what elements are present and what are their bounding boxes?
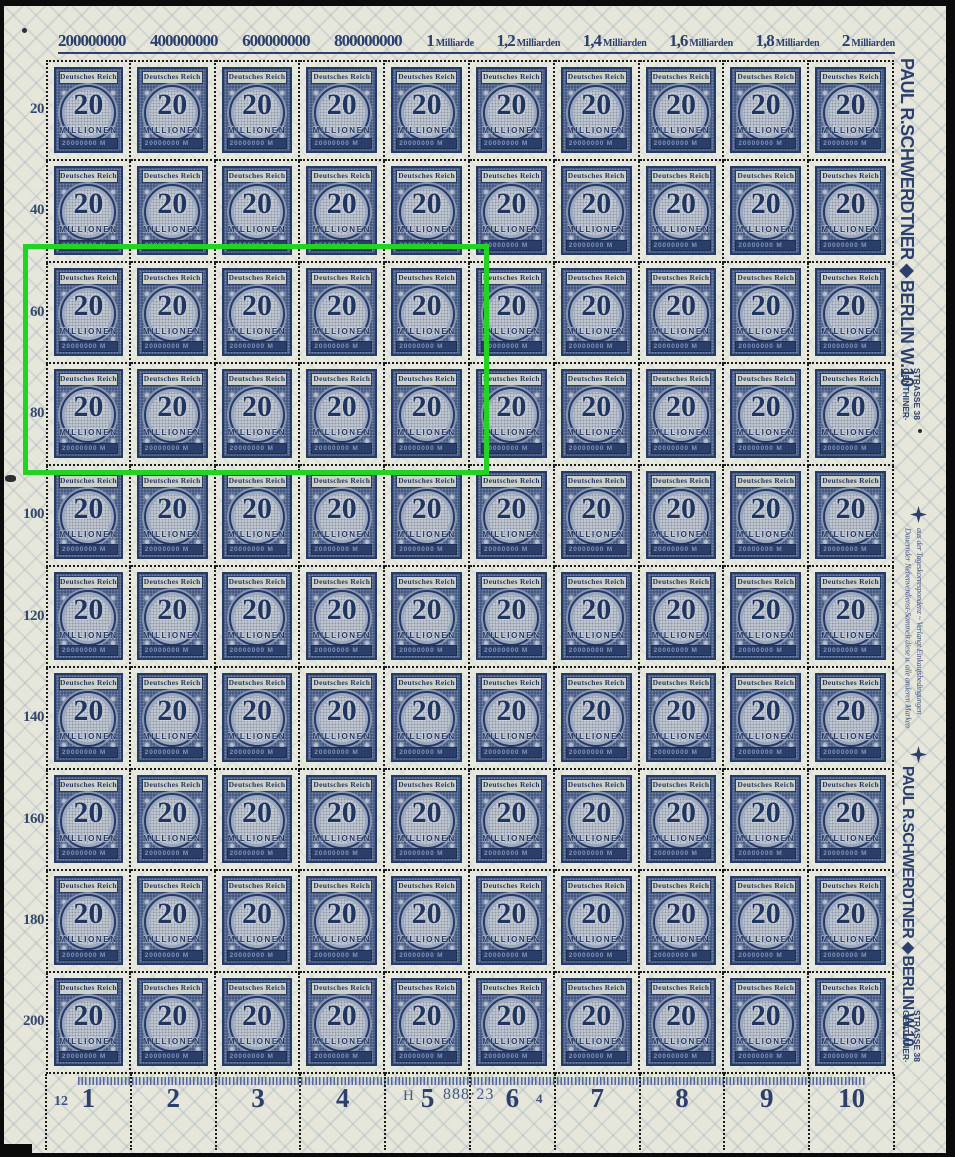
stamp-face-value: 20000000 M — [735, 848, 796, 859]
stamp[interactable]: Deutsches Reich20MILLIONEN20000000 M — [470, 60, 555, 161]
stamp[interactable]: Deutsches Reich20MILLIONEN20000000 M — [809, 466, 894, 567]
stamp-design: Deutsches Reich20MILLIONEN20000000 M — [391, 876, 462, 964]
stamp-design: Deutsches Reich20MILLIONEN20000000 M — [137, 978, 208, 1066]
stamp[interactable]: Deutsches Reich20MILLIONEN20000000 M — [385, 161, 470, 262]
stamp-face-value: 20000000 M — [481, 950, 542, 961]
scale-number: 1,4 — [583, 31, 601, 51]
scale-label: 1,4Milliarden — [583, 31, 647, 51]
stamp[interactable]: Deutsches Reich20MILLIONEN20000000 M — [385, 871, 470, 972]
stamp-country-label: Deutsches Reich — [227, 71, 288, 84]
column-number: 9 — [742, 1083, 792, 1113]
perforation-line — [45, 1074, 47, 1150]
stamp-design: Deutsches Reich20MILLIONEN20000000 M — [391, 673, 462, 761]
stamp-face-value: 20000000 M — [481, 848, 542, 859]
stamp[interactable]: Deutsches Reich20MILLIONEN20000000 M — [724, 567, 809, 668]
stamp-country-label: Deutsches Reich — [142, 880, 203, 893]
stamp[interactable]: Deutsches Reich20MILLIONEN20000000 M — [131, 668, 216, 769]
row-count-label: 160 — [8, 811, 44, 828]
stamp-denomination: MILLIONEN — [563, 225, 630, 235]
stamp[interactable]: Deutsches Reich20MILLIONEN20000000 M — [555, 364, 640, 465]
stamp-value: 20 — [393, 899, 460, 929]
star-icon — [910, 746, 927, 763]
scan-speck — [22, 28, 27, 33]
stamp-design: Deutsches Reich20MILLIONEN20000000 M — [730, 978, 801, 1066]
stamp-sheet-scan: { "top_scale": { "labels": [ {"num":"200… — [0, 0, 955, 1157]
stamp[interactable]: Deutsches Reich20MILLIONEN20000000 M — [46, 770, 131, 871]
stamp-country-label: Deutsches Reich — [227, 982, 288, 995]
stamp-face-value: 20000000 M — [142, 1051, 203, 1062]
stamp-denomination: MILLIONEN — [478, 935, 545, 945]
stamp-value: 20 — [648, 798, 715, 828]
stamp-denomination: MILLIONEN — [817, 631, 884, 641]
stamp[interactable]: Deutsches Reich20MILLIONEN20000000 M — [131, 161, 216, 262]
stamp-face-value: 20000000 M — [311, 443, 372, 454]
stamp-country-label: Deutsches Reich — [820, 576, 881, 589]
stamp-denomination: MILLIONEN — [563, 631, 630, 641]
stamp-country-label: Deutsches Reich — [396, 170, 457, 183]
stamp[interactable]: Deutsches Reich20MILLIONEN20000000 M — [809, 973, 894, 1074]
stamp[interactable]: Deutsches Reich20MILLIONEN20000000 M — [385, 263, 470, 364]
stamp-denomination: MILLIONEN — [648, 935, 715, 945]
stamp-value: 20 — [563, 392, 630, 422]
stamp[interactable]: Deutsches Reich20MILLIONEN20000000 M — [131, 770, 216, 871]
stamp[interactable]: Deutsches Reich20MILLIONEN20000000 M — [46, 871, 131, 972]
stamp-face-value: 20000000 M — [481, 341, 542, 352]
stamp-value: 20 — [732, 90, 799, 120]
stamp[interactable]: Deutsches Reich20MILLIONEN20000000 M — [216, 263, 301, 364]
stamp[interactable]: Deutsches Reich20MILLIONEN20000000 M — [640, 364, 725, 465]
stamp-value: 20 — [393, 1001, 460, 1031]
stamp-value: 20 — [732, 1001, 799, 1031]
stamp-value: 20 — [224, 696, 291, 726]
stamp-country-label: Deutsches Reich — [481, 170, 542, 183]
stamp[interactable]: Deutsches Reich20MILLIONEN20000000 M — [470, 973, 555, 1074]
stamp[interactable]: Deutsches Reich20MILLIONEN20000000 M — [385, 668, 470, 769]
stamp[interactable]: Deutsches Reich20MILLIONEN20000000 M — [385, 364, 470, 465]
stamp[interactable]: Deutsches Reich20MILLIONEN20000000 M — [555, 60, 640, 161]
stamp-value: 20 — [817, 595, 884, 625]
stamp-country-label: Deutsches Reich — [820, 475, 881, 488]
stamp[interactable]: Deutsches Reich20MILLIONEN20000000 M — [809, 567, 894, 668]
stamp-design: Deutsches Reich20MILLIONEN20000000 M — [646, 166, 717, 254]
scan-speck — [918, 429, 922, 433]
stamp-value: 20 — [308, 595, 375, 625]
stamp-value: 20 — [393, 90, 460, 120]
stamp[interactable]: Deutsches Reich20MILLIONEN20000000 M — [216, 871, 301, 972]
scale-label: 400000000 — [150, 31, 220, 51]
stamp-denomination: MILLIONEN — [478, 225, 545, 235]
stamp-value: 20 — [393, 696, 460, 726]
stamp[interactable]: Deutsches Reich20MILLIONEN20000000 M — [640, 871, 725, 972]
stamp[interactable]: Deutsches Reich20MILLIONEN20000000 M — [385, 466, 470, 567]
scan-edge — [0, 0, 955, 6]
stamp-face-value: 20000000 M — [142, 645, 203, 656]
stamp-value: 20 — [393, 494, 460, 524]
stamp-value: 20 — [224, 1001, 291, 1031]
scale-number: 200000000 — [58, 31, 126, 51]
stamp-design: Deutsches Reich20MILLIONEN20000000 M — [306, 876, 377, 964]
stamp-design: Deutsches Reich20MILLIONEN20000000 M — [222, 268, 293, 356]
stamp[interactable]: Deutsches Reich20MILLIONEN20000000 M — [300, 263, 385, 364]
stamp[interactable]: Deutsches Reich20MILLIONEN20000000 M — [555, 567, 640, 668]
stamp[interactable]: Deutsches Reich20MILLIONEN20000000 M — [724, 668, 809, 769]
stamp-country-label: Deutsches Reich — [481, 475, 542, 488]
stamp-value: 20 — [139, 494, 206, 524]
stamp[interactable]: Deutsches Reich20MILLIONEN20000000 M — [724, 466, 809, 567]
stamp-design: Deutsches Reich20MILLIONEN20000000 M — [306, 775, 377, 863]
stamp-face-value: 20000000 M — [311, 950, 372, 961]
stamp-face-value: 20000000 M — [651, 138, 712, 149]
scale-number: 1 — [426, 31, 434, 51]
stamp[interactable]: Deutsches Reich20MILLIONEN20000000 M — [216, 466, 301, 567]
stamp-country-label: Deutsches Reich — [227, 576, 288, 589]
stamp-design: Deutsches Reich20MILLIONEN20000000 M — [54, 673, 123, 761]
stamp-denomination: MILLIONEN — [478, 834, 545, 844]
stamp-denomination: MILLIONEN — [139, 327, 206, 337]
stamp-value: 20 — [817, 696, 884, 726]
stamp[interactable]: Deutsches Reich20MILLIONEN20000000 M — [131, 60, 216, 161]
stamp-face-value: 20000000 M — [820, 645, 881, 656]
stamp[interactable]: Deutsches Reich20MILLIONEN20000000 M — [131, 364, 216, 465]
stamp[interactable]: Deutsches Reich20MILLIONEN20000000 M — [131, 263, 216, 364]
stamp-face-value: 20000000 M — [735, 443, 796, 454]
stamp[interactable]: Deutsches Reich20MILLIONEN20000000 M — [131, 567, 216, 668]
stamp-face-value: 20000000 M — [566, 950, 627, 961]
stamp-design: Deutsches Reich20MILLIONEN20000000 M — [730, 471, 801, 559]
stamp[interactable]: Deutsches Reich20MILLIONEN20000000 M — [216, 161, 301, 262]
stamp-denomination: MILLIONEN — [817, 225, 884, 235]
stamp-country-label: Deutsches Reich — [566, 71, 627, 84]
stamp[interactable]: Deutsches Reich20MILLIONEN20000000 M — [555, 466, 640, 567]
stamp[interactable]: Deutsches Reich20MILLIONEN20000000 M — [640, 263, 725, 364]
stamp-denomination: MILLIONEN — [563, 732, 630, 742]
stamp[interactable]: Deutsches Reich20MILLIONEN20000000 M — [470, 567, 555, 668]
stamp-design: Deutsches Reich20MILLIONEN20000000 M — [137, 369, 208, 457]
stamp[interactable]: Deutsches Reich20MILLIONEN20000000 M — [640, 466, 725, 567]
stamp-design: Deutsches Reich20MILLIONEN20000000 M — [815, 572, 886, 660]
scale-number: 1,8 — [756, 31, 774, 51]
stamp-value: 20 — [56, 1001, 121, 1031]
stamp-value: 20 — [648, 90, 715, 120]
stamp-design: Deutsches Reich20MILLIONEN20000000 M — [561, 369, 632, 457]
stamp-denomination: MILLIONEN — [732, 732, 799, 742]
scale-number: 400000000 — [150, 31, 218, 51]
stamp-face-value: 20000000 M — [396, 950, 457, 961]
stamp-country-label: Deutsches Reich — [59, 779, 118, 792]
stamp[interactable]: Deutsches Reich20MILLIONEN20000000 M — [216, 668, 301, 769]
stamp[interactable]: Deutsches Reich20MILLIONEN20000000 M — [385, 973, 470, 1074]
stamp[interactable]: Deutsches Reich20MILLIONEN20000000 M — [46, 263, 131, 364]
row-count-label: 200 — [8, 1013, 44, 1030]
stamp[interactable]: Deutsches Reich20MILLIONEN20000000 M — [470, 466, 555, 567]
stamp-country-label: Deutsches Reich — [735, 170, 796, 183]
stamp-face-value: 20000000 M — [481, 747, 542, 758]
stamp-country-label: Deutsches Reich — [396, 272, 457, 285]
stamp-country-label: Deutsches Reich — [59, 982, 118, 995]
stamp-country-label: Deutsches Reich — [59, 170, 118, 183]
stamp[interactable]: Deutsches Reich20MILLIONEN20000000 M — [640, 668, 725, 769]
scan-edge — [0, 1153, 955, 1157]
stamp[interactable]: Deutsches Reich20MILLIONEN20000000 M — [470, 263, 555, 364]
stamp-value: 20 — [393, 798, 460, 828]
stamp-country-label: Deutsches Reich — [227, 373, 288, 386]
stamp-denomination: MILLIONEN — [308, 732, 375, 742]
stamp-face-value: 20000000 M — [311, 848, 372, 859]
stamp-face-value: 20000000 M — [735, 645, 796, 656]
stamp-face-value: 20000000 M — [142, 544, 203, 555]
stamp-denomination: MILLIONEN — [56, 327, 121, 337]
stamp[interactable]: Deutsches Reich20MILLIONEN20000000 M — [46, 364, 131, 465]
scale-label: 600000000 — [242, 31, 312, 51]
stamp[interactable]: Deutsches Reich20MILLIONEN20000000 M — [809, 161, 894, 262]
stamp-face-value: 20000000 M — [651, 848, 712, 859]
stamp-value: 20 — [732, 798, 799, 828]
stamp[interactable]: Deutsches Reich20MILLIONEN20000000 M — [300, 567, 385, 668]
stamp-value: 20 — [732, 291, 799, 321]
stamp[interactable]: Deutsches Reich20MILLIONEN20000000 M — [216, 973, 301, 1074]
stamp[interactable]: Deutsches Reich20MILLIONEN20000000 M — [470, 364, 555, 465]
stamp-country-label: Deutsches Reich — [651, 272, 712, 285]
stamp[interactable]: Deutsches Reich20MILLIONEN20000000 M — [131, 973, 216, 1074]
stamp[interactable]: Deutsches Reich20MILLIONEN20000000 M — [555, 263, 640, 364]
stamp-country-label: Deutsches Reich — [481, 272, 542, 285]
scale-number: 1,6 — [669, 31, 687, 51]
stamp-value: 20 — [308, 189, 375, 219]
stamp-denomination: MILLIONEN — [732, 225, 799, 235]
stamp-value: 20 — [308, 392, 375, 422]
stamp[interactable]: Deutsches Reich20MILLIONEN20000000 M — [300, 466, 385, 567]
stamp-value: 20 — [393, 392, 460, 422]
stamp-country-label: Deutsches Reich — [566, 475, 627, 488]
stamp-country-label: Deutsches Reich — [820, 170, 881, 183]
stamp[interactable]: Deutsches Reich20MILLIONEN20000000 M — [46, 668, 131, 769]
stamp[interactable]: Deutsches Reich20MILLIONEN20000000 M — [300, 161, 385, 262]
stamp[interactable]: Deutsches Reich20MILLIONEN20000000 M — [470, 161, 555, 262]
stamp-face-value: 20000000 M — [311, 544, 372, 555]
stamp[interactable]: Deutsches Reich20MILLIONEN20000000 M — [809, 770, 894, 871]
column-number: 7 — [572, 1083, 622, 1113]
stamp-design: Deutsches Reich20MILLIONEN20000000 M — [476, 775, 547, 863]
stamp-country-label: Deutsches Reich — [311, 982, 372, 995]
stamp-face-value: 20000000 M — [651, 240, 712, 251]
stamp-country-label: Deutsches Reich — [566, 170, 627, 183]
stamp-face-value: 20000000 M — [311, 240, 372, 251]
stamp[interactable]: Deutsches Reich20MILLIONEN20000000 M — [385, 770, 470, 871]
stamp[interactable]: Deutsches Reich20MILLIONEN20000000 M — [640, 973, 725, 1074]
stamp-design: Deutsches Reich20MILLIONEN20000000 M — [815, 166, 886, 254]
stamp[interactable]: Deutsches Reich20MILLIONEN20000000 M — [724, 161, 809, 262]
stamp-face-value: 20000000 M — [142, 848, 203, 859]
stamp[interactable]: Deutsches Reich20MILLIONEN20000000 M — [300, 770, 385, 871]
stamp-design: Deutsches Reich20MILLIONEN20000000 M — [391, 572, 462, 660]
stamp-design: Deutsches Reich20MILLIONEN20000000 M — [222, 67, 293, 153]
stamp-face-value: 20000000 M — [820, 544, 881, 555]
stamp-grid: Deutsches Reich20MILLIONEN20000000 MDeut… — [46, 60, 894, 1074]
stamp-face-value: 20000000 M — [566, 341, 627, 352]
stamp-design: Deutsches Reich20MILLIONEN20000000 M — [476, 67, 547, 153]
stamp-design: Deutsches Reich20MILLIONEN20000000 M — [306, 268, 377, 356]
stamp-country-label: Deutsches Reich — [651, 475, 712, 488]
stamp[interactable]: Deutsches Reich20MILLIONEN20000000 M — [470, 871, 555, 972]
stamp-face-value: 20000000 M — [142, 341, 203, 352]
stamp[interactable]: Deutsches Reich20MILLIONEN20000000 M — [809, 60, 894, 161]
stamp[interactable]: Deutsches Reich20MILLIONEN20000000 M — [555, 668, 640, 769]
stamp[interactable]: Deutsches Reich20MILLIONEN20000000 M — [46, 161, 131, 262]
stamp-denomination: MILLIONEN — [732, 428, 799, 438]
stamp-denomination: MILLIONEN — [224, 126, 291, 136]
stamp-value: 20 — [817, 90, 884, 120]
stamp-denomination: MILLIONEN — [648, 530, 715, 540]
stamp-country-label: Deutsches Reich — [735, 71, 796, 84]
stamp[interactable]: Deutsches Reich20MILLIONEN20000000 M — [46, 973, 131, 1074]
stamp-value: 20 — [139, 189, 206, 219]
stamp-value: 20 — [817, 189, 884, 219]
stamp[interactable]: Deutsches Reich20MILLIONEN20000000 M — [555, 973, 640, 1074]
stamp-value: 20 — [56, 798, 121, 828]
stamp[interactable]: Deutsches Reich20MILLIONEN20000000 M — [300, 973, 385, 1074]
stamp[interactable]: Deutsches Reich20MILLIONEN20000000 M — [724, 263, 809, 364]
stamp[interactable]: Deutsches Reich20MILLIONEN20000000 M — [640, 770, 725, 871]
stamp-denomination: MILLIONEN — [56, 225, 121, 235]
stamp[interactable]: Deutsches Reich20MILLIONEN20000000 M — [46, 567, 131, 668]
stamp[interactable]: Deutsches Reich20MILLIONEN20000000 M — [640, 161, 725, 262]
stamp[interactable]: Deutsches Reich20MILLIONEN20000000 M — [216, 364, 301, 465]
stamp[interactable]: Deutsches Reich20MILLIONEN20000000 M — [555, 770, 640, 871]
stamp-denomination: MILLIONEN — [478, 327, 545, 337]
stamp[interactable]: Deutsches Reich20MILLIONEN20000000 M — [216, 567, 301, 668]
stamp[interactable]: Deutsches Reich20MILLIONEN20000000 M — [131, 466, 216, 567]
scale-number: 1,2 — [496, 31, 514, 51]
stamp-face-value: 20000000 M — [820, 747, 881, 758]
stamp-face-value: 20000000 M — [59, 443, 118, 454]
stamp-country-label: Deutsches Reich — [735, 272, 796, 285]
stamp-value: 20 — [139, 90, 206, 120]
stamp-denomination: MILLIONEN — [224, 327, 291, 337]
stamp[interactable]: Deutsches Reich20MILLIONEN20000000 M — [724, 364, 809, 465]
stamp[interactable]: Deutsches Reich20MILLIONEN20000000 M — [809, 263, 894, 364]
stamp-design: Deutsches Reich20MILLIONEN20000000 M — [815, 67, 886, 153]
stamp-value: 20 — [563, 494, 630, 524]
stamp-value: 20 — [308, 798, 375, 828]
stamp-design: Deutsches Reich20MILLIONEN20000000 M — [561, 166, 632, 254]
stamp-design: Deutsches Reich20MILLIONEN20000000 M — [222, 471, 293, 559]
stamp[interactable]: Deutsches Reich20MILLIONEN20000000 M — [809, 871, 894, 972]
stamp-face-value: 20000000 M — [566, 747, 627, 758]
stamp-face-value: 20000000 M — [735, 747, 796, 758]
stamp-denomination: MILLIONEN — [224, 935, 291, 945]
stamp[interactable]: Deutsches Reich20MILLIONEN20000000 M — [300, 60, 385, 161]
stamp-design: Deutsches Reich20MILLIONEN20000000 M — [476, 572, 547, 660]
stamp-denomination: MILLIONEN — [139, 428, 206, 438]
stamp[interactable]: Deutsches Reich20MILLIONEN20000000 M — [131, 871, 216, 972]
stamp-face-value: 20000000 M — [481, 240, 542, 251]
stamp-value: 20 — [563, 291, 630, 321]
stamp[interactable]: Deutsches Reich20MILLIONEN20000000 M — [640, 567, 725, 668]
dealer-imprint-top: PAUL R.SCHWERDTNER◆BERLIN W.10 — [896, 58, 918, 386]
stamp-value: 20 — [478, 291, 545, 321]
stamp-value: 20 — [56, 90, 121, 120]
row-count-label: 100 — [8, 506, 44, 523]
stamp-denomination: MILLIONEN — [817, 1037, 884, 1047]
stamp-value: 20 — [817, 1001, 884, 1031]
stamp-denomination: MILLIONEN — [817, 327, 884, 337]
stamp[interactable]: Deutsches Reich20MILLIONEN20000000 M — [300, 871, 385, 972]
stamp-value: 20 — [478, 1001, 545, 1031]
scale-label: 800000000 — [334, 31, 404, 51]
stamp-denomination: MILLIONEN — [563, 1037, 630, 1047]
stamp-design: Deutsches Reich20MILLIONEN20000000 M — [54, 775, 123, 863]
stamp-country-label: Deutsches Reich — [481, 779, 542, 792]
stamp[interactable]: Deutsches Reich20MILLIONEN20000000 M — [724, 973, 809, 1074]
stamp[interactable]: Deutsches Reich20MILLIONEN20000000 M — [724, 60, 809, 161]
stamp-design: Deutsches Reich20MILLIONEN20000000 M — [730, 268, 801, 356]
stamp[interactable]: Deutsches Reich20MILLIONEN20000000 M — [300, 668, 385, 769]
stamp-country-label: Deutsches Reich — [820, 982, 881, 995]
stamp[interactable]: Deutsches Reich20MILLIONEN20000000 M — [46, 466, 131, 567]
row-count-label: 20 — [8, 101, 44, 118]
stamp-country-label: Deutsches Reich — [735, 982, 796, 995]
stamp[interactable]: Deutsches Reich20MILLIONEN20000000 M — [555, 871, 640, 972]
stamp-design: Deutsches Reich20MILLIONEN20000000 M — [561, 572, 632, 660]
top-scale-labels: 2000000004000000006000000008000000001Mil… — [58, 31, 895, 52]
stamp[interactable]: Deutsches Reich20MILLIONEN20000000 M — [724, 871, 809, 972]
stamp-denomination: MILLIONEN — [224, 834, 291, 844]
stamp-face-value: 20000000 M — [227, 240, 288, 251]
stamp-design: Deutsches Reich20MILLIONEN20000000 M — [137, 572, 208, 660]
stamp-country-label: Deutsches Reich — [142, 576, 203, 589]
stamp[interactable]: Deutsches Reich20MILLIONEN20000000 M — [216, 60, 301, 161]
stamp[interactable]: Deutsches Reich20MILLIONEN20000000 M — [470, 668, 555, 769]
stamp-face-value: 20000000 M — [142, 747, 203, 758]
stamp[interactable]: Deutsches Reich20MILLIONEN20000000 M — [724, 770, 809, 871]
stamp-denomination: MILLIONEN — [393, 530, 460, 540]
stamp-value: 20 — [732, 189, 799, 219]
stamp-denomination: MILLIONEN — [648, 327, 715, 337]
stamp-country-label: Deutsches Reich — [820, 71, 881, 84]
stamp-country-label: Deutsches Reich — [566, 272, 627, 285]
stamp[interactable]: Deutsches Reich20MILLIONEN20000000 M — [216, 770, 301, 871]
stamp[interactable]: Deutsches Reich20MILLIONEN20000000 M — [300, 364, 385, 465]
stamp-value: 20 — [139, 1001, 206, 1031]
stamp-country-label: Deutsches Reich — [820, 272, 881, 285]
stamp-denomination: MILLIONEN — [308, 428, 375, 438]
stamp-value: 20 — [732, 494, 799, 524]
right-margin: PAUL R.SCHWERDTNER◆BERLIN W.10 GENTHINER… — [894, 58, 946, 1076]
stamp[interactable]: Deutsches Reich20MILLIONEN20000000 M — [640, 60, 725, 161]
stamp-face-value: 20000000 M — [396, 240, 457, 251]
stamp-country-label: Deutsches Reich — [311, 475, 372, 488]
row-count-label: 180 — [8, 912, 44, 929]
stamp[interactable]: Deutsches Reich20MILLIONEN20000000 M — [385, 60, 470, 161]
stamp-denomination: MILLIONEN — [732, 834, 799, 844]
stamp[interactable]: Deutsches Reich20MILLIONEN20000000 M — [555, 161, 640, 262]
stamp[interactable]: Deutsches Reich20MILLIONEN20000000 M — [385, 567, 470, 668]
stamp-country-label: Deutsches Reich — [481, 576, 542, 589]
scale-unit: Milliarden — [517, 38, 561, 49]
stamp[interactable]: Deutsches Reich20MILLIONEN20000000 M — [470, 770, 555, 871]
stamp-country-label: Deutsches Reich — [142, 373, 203, 386]
stamp[interactable]: Deutsches Reich20MILLIONEN20000000 M — [809, 364, 894, 465]
stamp-face-value: 20000000 M — [311, 1051, 372, 1062]
stamp[interactable]: Deutsches Reich20MILLIONEN20000000 M — [46, 60, 131, 161]
stamp-value: 20 — [648, 291, 715, 321]
stamp-country-label: Deutsches Reich — [396, 71, 457, 84]
stamp-denomination: MILLIONEN — [732, 631, 799, 641]
stamp-design: Deutsches Reich20MILLIONEN20000000 M — [222, 978, 293, 1066]
stamp[interactable]: Deutsches Reich20MILLIONEN20000000 M — [809, 668, 894, 769]
stamp-denomination: MILLIONEN — [732, 126, 799, 136]
stamp-country-label: Deutsches Reich — [142, 982, 203, 995]
